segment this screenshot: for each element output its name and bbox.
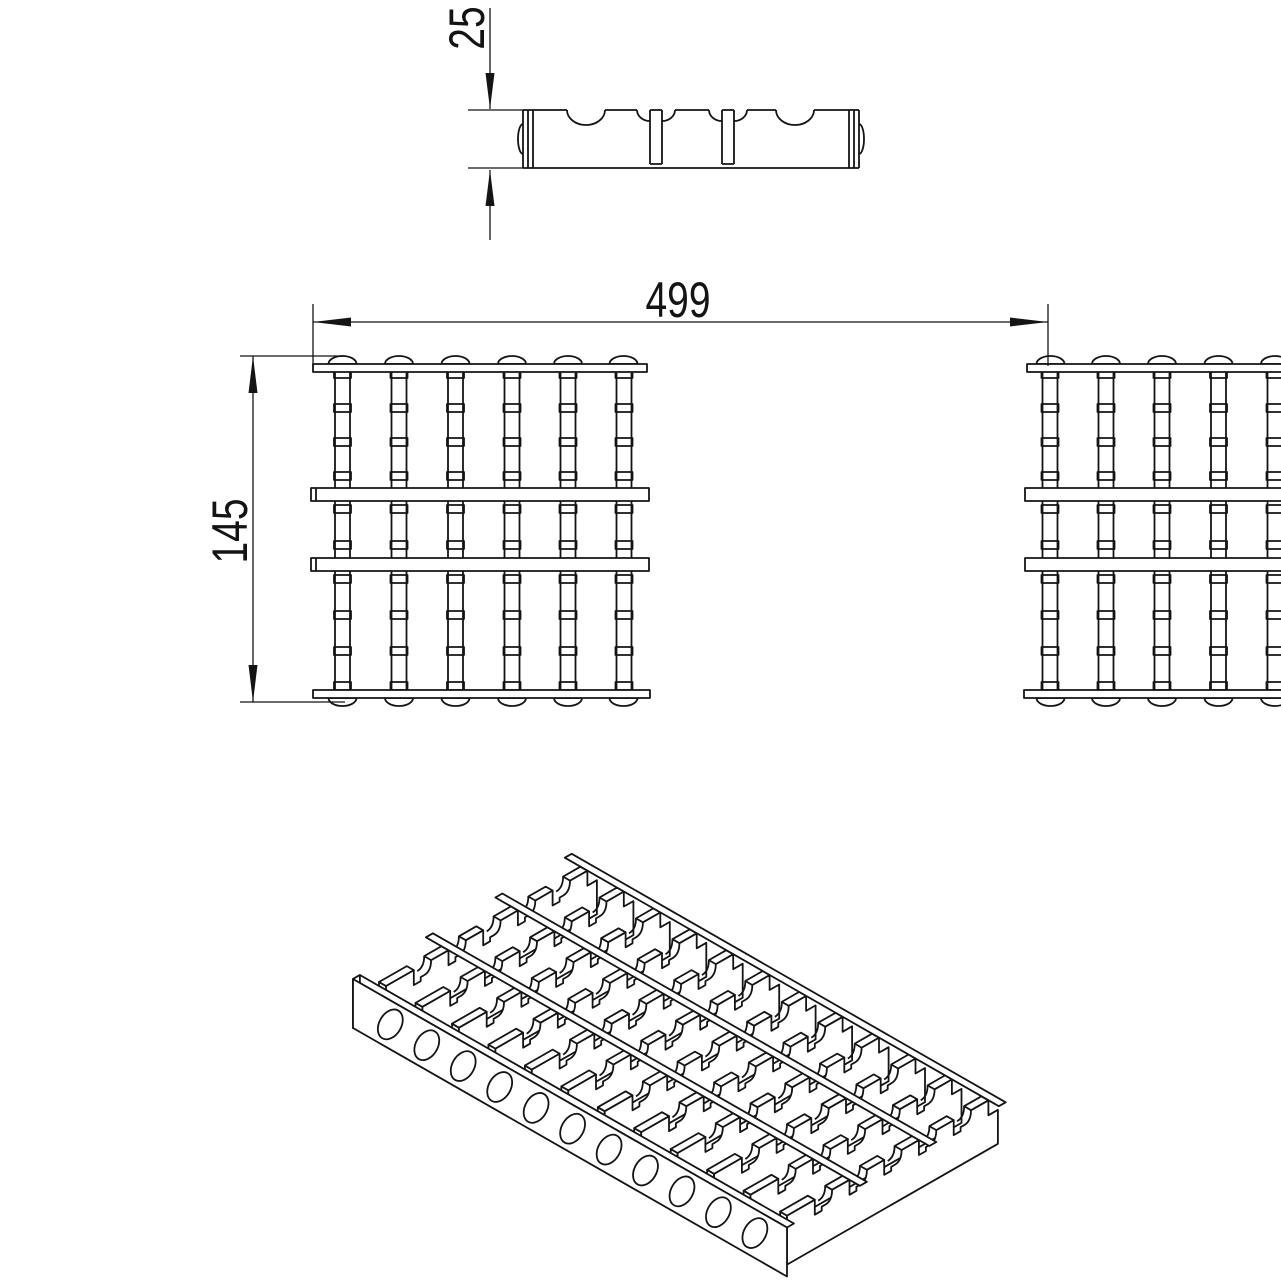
- profile-outline: [518, 110, 864, 168]
- depth-dimension-label: 145: [201, 498, 258, 563]
- side-profile-view: [518, 110, 864, 168]
- tooth-arc-edge: [556, 877, 563, 892]
- height-dimension-label: 25: [438, 6, 495, 49]
- depth-dimension: 145: [201, 356, 345, 702]
- engineering-drawing-page: 25 499 145: [0, 0, 1281, 1281]
- engineering-drawing: 25 499 145: [0, 0, 1281, 1281]
- arrowhead: [249, 665, 258, 702]
- arrowhead: [486, 73, 495, 109]
- extension-line: [468, 110, 523, 168]
- width-dimension-label: 499: [645, 271, 710, 328]
- isometric-view: [353, 854, 1006, 1277]
- height-dimension: 25: [438, 6, 523, 240]
- arrowhead: [486, 170, 495, 206]
- tooth-arc-edge: [417, 956, 424, 971]
- width-dimension: 499: [313, 271, 1048, 366]
- tooth-arc-edge: [487, 916, 494, 931]
- arrowhead: [313, 318, 351, 327]
- arrowhead: [1010, 318, 1048, 327]
- arrowhead: [249, 356, 258, 393]
- plan-view-right-section: [1024, 356, 1281, 706]
- plan-view-left-section: [311, 356, 650, 706]
